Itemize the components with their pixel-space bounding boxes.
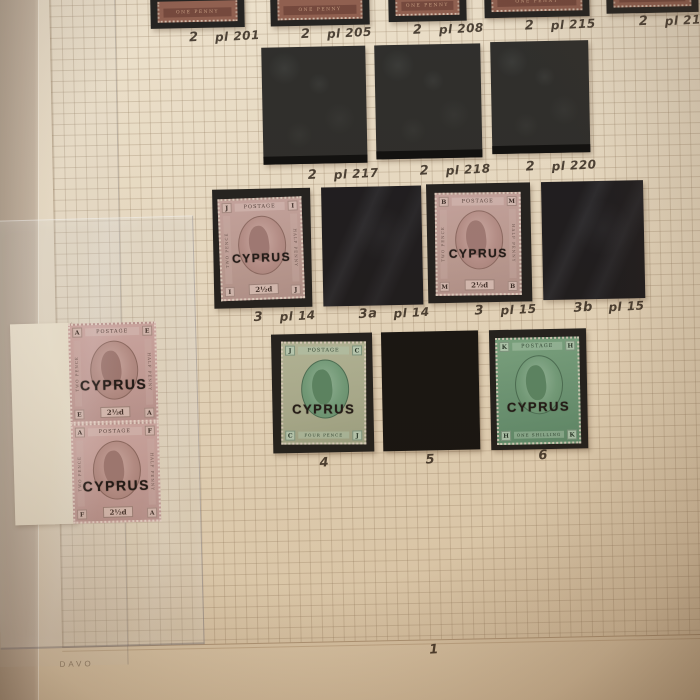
stamp-value-text: ONE PENNY bbox=[619, 0, 685, 3]
handwritten-label: 2 pl 205 bbox=[301, 26, 372, 42]
stamp-1s-green: K H H K POSTAGE CYPRUS ONE SHILLING bbox=[495, 336, 581, 445]
album-page-photo: ONE PENNY ONE PENNY ONE PENNY ONE PENNY … bbox=[0, 0, 700, 700]
stamp-1d-red-partial: ONE PENNY bbox=[491, 0, 582, 12]
catalogue-number: 3b bbox=[573, 300, 593, 316]
stamp-value: 2½d bbox=[465, 279, 495, 290]
corner-letter: H bbox=[501, 431, 511, 441]
cyprus-overprint: CYPRUS bbox=[437, 246, 519, 261]
sheet-margin-selvage bbox=[10, 323, 77, 526]
catalogue-number: 2 bbox=[638, 14, 648, 30]
stamp-value-text: ONE SHILLING bbox=[514, 431, 564, 439]
plate-number: pl 15 bbox=[608, 298, 645, 314]
handwritten-label: 5 bbox=[425, 452, 435, 467]
catalogue-number: 4 bbox=[319, 455, 329, 471]
corner-letter: I bbox=[287, 200, 297, 210]
empty-stamp-mount bbox=[490, 40, 590, 154]
stamp-1d-red-partial: ONE PENNY bbox=[395, 0, 459, 16]
corner-letter: A bbox=[144, 408, 154, 418]
stamp-side-text: TWO PENCE bbox=[76, 440, 85, 506]
empty-stamp-mount bbox=[381, 330, 480, 451]
plate-number: pl 201 bbox=[214, 28, 260, 44]
empty-stamp-mount bbox=[541, 180, 645, 300]
corner-letter: B bbox=[508, 281, 518, 291]
stamp-side-text: HALF PENNY bbox=[147, 439, 156, 505]
queen-victoria-portrait bbox=[455, 210, 504, 270]
catalogue-number: 2 bbox=[419, 163, 429, 179]
stamp-1d-red-partial: ONE PENNY bbox=[277, 0, 362, 20]
plate-number: pl 217 bbox=[333, 166, 379, 182]
handwritten-page-number: 1 bbox=[429, 642, 439, 657]
stamp-value: 2½d bbox=[100, 406, 130, 418]
handwritten-label: 2 pl 218 bbox=[420, 162, 491, 178]
plate-number: pl 208 bbox=[438, 20, 484, 36]
empty-stamp-mount bbox=[321, 186, 423, 307]
handwritten-label: 3a pl 14 bbox=[358, 305, 429, 321]
stamp-side-text: HALF PENNY bbox=[509, 209, 517, 278]
handwritten-label: 2 pl 217 bbox=[308, 166, 379, 182]
stamp-value: 2½d bbox=[249, 283, 279, 295]
cyprus-overprint: CYPRUS bbox=[498, 398, 578, 415]
stamp-value: 2½d bbox=[103, 506, 133, 518]
corner-letter: C bbox=[352, 345, 362, 355]
handwritten-label: 4 bbox=[319, 455, 329, 470]
corner-letter: J bbox=[352, 430, 362, 440]
catalogue-number: 2 bbox=[412, 22, 422, 38]
empty-stamp-mount bbox=[374, 43, 482, 159]
corner-letter: B bbox=[439, 197, 449, 207]
plate-number: pl 216 bbox=[664, 12, 700, 28]
corner-letter: M bbox=[507, 196, 517, 206]
stamp-2half-d-mauve: J I I J POSTAGE TWO PENCE HALF PENNY CYP… bbox=[217, 196, 305, 301]
catalogue-number: 2 bbox=[525, 159, 535, 175]
stamp-mount: ONE PENNY bbox=[605, 0, 699, 14]
corner-letter: J bbox=[222, 203, 232, 213]
stamp-mount: ONE PENNY bbox=[483, 0, 590, 18]
handwritten-label: 2 pl 216 bbox=[639, 13, 700, 29]
corner-letter: A bbox=[72, 327, 82, 337]
stamp-postage-text: POSTAGE bbox=[298, 346, 349, 354]
corner-letter: E bbox=[74, 409, 84, 419]
stamp-postage-text: POSTAGE bbox=[512, 342, 562, 351]
stamp-postage-text: POSTAGE bbox=[452, 197, 504, 206]
corner-letter: A bbox=[75, 427, 85, 437]
page-content: ONE PENNY ONE PENNY ONE PENNY ONE PENNY … bbox=[0, 0, 700, 700]
stamp-mount: ONE PENNY bbox=[149, 0, 245, 29]
stamp-value-text: ONE PENNY bbox=[163, 7, 231, 17]
corner-letter: J bbox=[291, 284, 301, 294]
plate-number: pl 14 bbox=[393, 305, 430, 321]
corner-letter: E bbox=[142, 326, 152, 336]
queen-victoria-portrait bbox=[237, 215, 287, 276]
catalogue-number: 2 bbox=[524, 18, 534, 34]
catalogue-number: 6 bbox=[538, 448, 548, 464]
stamp-postage-text: POSTAGE bbox=[88, 427, 142, 436]
empty-stamp-mount bbox=[261, 46, 367, 165]
corner-letter: M bbox=[440, 282, 450, 292]
stamp-value-text: ONE PENNY bbox=[497, 0, 576, 7]
catalogue-number: 5 bbox=[425, 452, 435, 468]
handwritten-label: 3 pl 14 bbox=[253, 309, 315, 325]
stamp-mount: ONE PENNY bbox=[387, 0, 467, 22]
plate-number: pl 218 bbox=[445, 161, 491, 177]
stamp-1d-red-partial: ONE PENNY bbox=[613, 0, 691, 8]
corner-letter: I bbox=[225, 287, 235, 297]
stamp-value-text: ONE PENNY bbox=[401, 1, 453, 11]
album-brand-mark: DAVO bbox=[59, 659, 93, 669]
corner-letter: C bbox=[285, 431, 295, 441]
stamp-mount: K H H K POSTAGE CYPRUS ONE SHILLING bbox=[489, 328, 588, 450]
corner-letter: K bbox=[499, 342, 509, 352]
handwritten-label: 2 pl 201 bbox=[189, 29, 260, 45]
catalogue-number: 2 bbox=[189, 30, 199, 46]
corner-letter: F bbox=[77, 509, 87, 519]
catalogue-number: 2 bbox=[307, 167, 317, 183]
handwritten-label: 3 pl 15 bbox=[474, 302, 536, 318]
cyprus-overprint: CYPRUS bbox=[74, 476, 158, 494]
plate-number: pl 220 bbox=[551, 157, 597, 173]
portrait-head bbox=[524, 364, 548, 401]
stamp-postage-text: POSTAGE bbox=[235, 202, 285, 212]
stamp-side-text: TWO PENCE bbox=[223, 216, 233, 284]
handwritten-label: 2 pl 220 bbox=[526, 158, 597, 174]
catalogue-number: 3a bbox=[358, 306, 378, 322]
stamp-mount: B M M B POSTAGE TWO PENCE HALF PENNY CYP… bbox=[426, 182, 532, 303]
cyprus-overprint: CYPRUS bbox=[71, 375, 155, 393]
stamp-side-text: HALF PENNY bbox=[144, 339, 153, 405]
corner-letter: F bbox=[145, 426, 155, 436]
stamp-2half-d-mauve-pair-bottom: A F F A POSTAGE TWO PENCE HALF PENNY CYP… bbox=[71, 421, 162, 523]
corner-letter: A bbox=[147, 507, 157, 517]
corner-letter: K bbox=[567, 429, 577, 439]
stamp-2half-d-mauve-pair-top: A E E A POSTAGE TWO PENCE HALF PENNY CYP… bbox=[68, 321, 159, 423]
plastic-sleeve: A E E A POSTAGE TWO PENCE HALF PENNY CYP… bbox=[0, 215, 205, 649]
stamp-2half-d-mauve: B M M B POSTAGE TWO PENCE HALF PENNY CYP… bbox=[435, 192, 522, 296]
stamp-side-text: HALF PENNY bbox=[290, 213, 300, 281]
plate-number: pl 15 bbox=[500, 302, 537, 318]
stamp-1d-red-partial: ONE PENNY bbox=[157, 0, 237, 23]
catalogue-number: 3 bbox=[474, 303, 484, 319]
stamp-side-text: TWO PENCE bbox=[440, 210, 448, 279]
stamp-mount: ONE PENNY bbox=[269, 0, 370, 27]
stamp-value-text: ONE PENNY bbox=[283, 5, 356, 15]
handwritten-label: 6 bbox=[538, 448, 548, 463]
corner-letter: H bbox=[565, 340, 575, 350]
corner-letter: J bbox=[285, 346, 295, 356]
page-number: 1 bbox=[429, 642, 439, 658]
plate-number: pl 205 bbox=[326, 25, 372, 41]
stamp-side-text: TWO PENCE bbox=[73, 341, 82, 407]
plate-number: pl 215 bbox=[550, 16, 596, 32]
cyprus-overprint: CYPRUS bbox=[283, 401, 364, 416]
stamp-mount: J C C J POSTAGE CYPRUS FOUR PENCE bbox=[271, 333, 374, 454]
handwritten-label: 2 pl 208 bbox=[413, 21, 484, 37]
stamp-postage-text: POSTAGE bbox=[85, 327, 139, 336]
catalogue-number: 2 bbox=[301, 27, 311, 43]
cyprus-overprint: CYPRUS bbox=[221, 249, 301, 266]
catalogue-number: 3 bbox=[253, 310, 263, 326]
stamp-4d-sage-green: J C C J POSTAGE CYPRUS FOUR PENCE bbox=[281, 341, 366, 444]
handwritten-label: 2 pl 215 bbox=[525, 17, 596, 33]
portrait-head bbox=[310, 369, 334, 406]
stamp-mount: J I I J POSTAGE TWO PENCE HALF PENNY CYP… bbox=[212, 188, 312, 309]
plate-number: pl 14 bbox=[279, 308, 316, 324]
handwritten-label: 3b pl 15 bbox=[573, 299, 645, 315]
stamp-value-text: FOUR PENCE bbox=[298, 431, 349, 438]
